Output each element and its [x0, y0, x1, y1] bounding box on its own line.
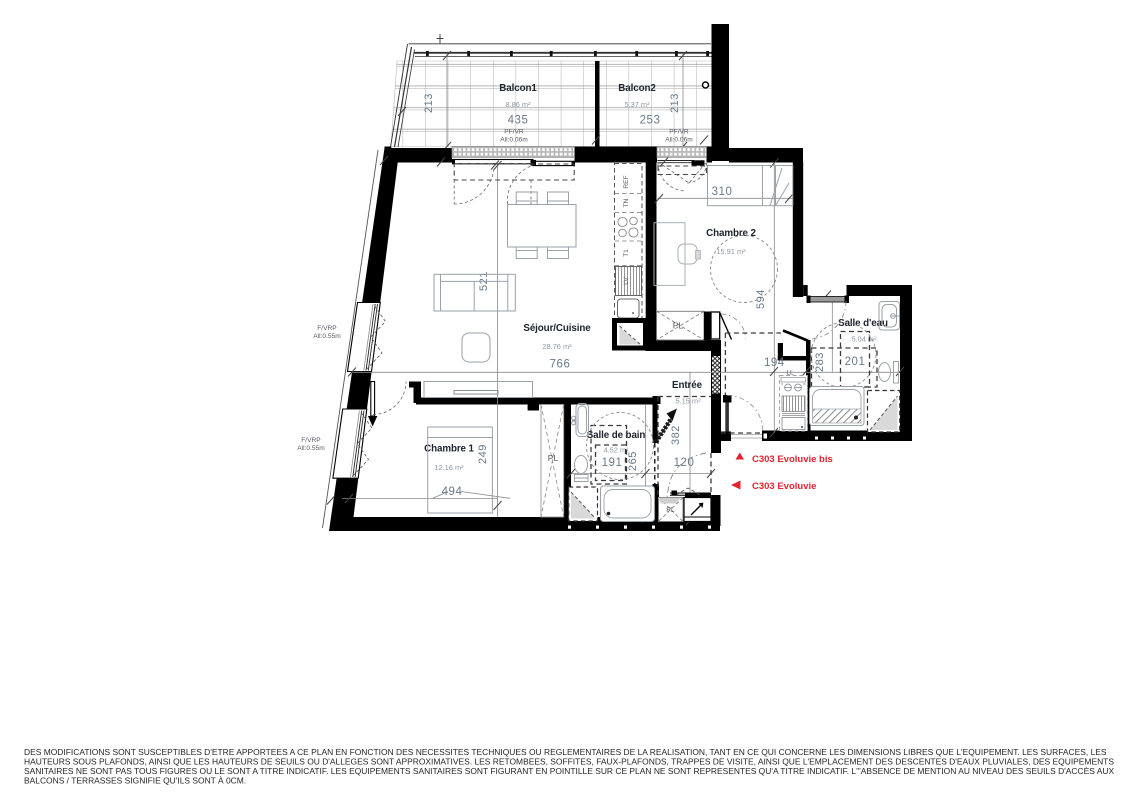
svg-text:194: 194 [764, 357, 785, 369]
svg-text:Balcon1: Balcon1 [499, 83, 537, 94]
svg-text:All:0.06m: All:0.06m [665, 137, 693, 144]
svg-text:Salle de bain: Salle de bain [587, 430, 646, 441]
svg-text:310: 310 [712, 186, 733, 198]
svg-text:TN: TN [623, 198, 630, 207]
svg-text:5.15 m²: 5.15 m² [675, 397, 701, 406]
svg-text:191: 191 [602, 457, 623, 469]
svg-text:120: 120 [674, 457, 695, 469]
svg-text:F/VRP: F/VRP [317, 325, 337, 332]
svg-text:PL: PL [548, 453, 559, 463]
svg-text:8.86 m²: 8.86 m² [505, 100, 531, 109]
svg-text:Chambre 1: Chambre 1 [424, 444, 474, 455]
svg-text:213: 213 [669, 93, 681, 113]
svg-text:594: 594 [755, 289, 767, 309]
svg-text:213: 213 [423, 93, 435, 113]
svg-text:Balcon2: Balcon2 [618, 83, 656, 94]
svg-text:PL: PL [666, 507, 675, 514]
svg-text:Séjour/Cuisine: Séjour/Cuisine [523, 323, 591, 334]
svg-text:15.91 m²: 15.91 m² [716, 247, 746, 256]
svg-text:F/VRP: F/VRP [301, 437, 321, 444]
svg-text:SANITAIRES NE SONT PAS TOUS FI: SANITAIRES NE SONT PAS TOUS FIGURES OU L… [24, 766, 1114, 776]
svg-text:28.76 m²: 28.76 m² [542, 342, 572, 351]
svg-text:5.04 m²: 5.04 m² [851, 335, 877, 344]
svg-text:PL: PL [673, 321, 684, 331]
svg-text:All:0.55m: All:0.55m [313, 333, 341, 340]
svg-text:C303 Evoluvie: C303 Evoluvie [752, 481, 816, 492]
svg-text:HAUTEURS SOUS PLAFONDS, AINSI: HAUTEURS SOUS PLAFONDS, AINSI QUE LES HA… [24, 756, 1114, 766]
svg-text:Entrée: Entrée [672, 380, 703, 391]
svg-text:494: 494 [442, 486, 463, 498]
svg-text:PF/VR: PF/VR [669, 129, 689, 136]
svg-text:PF/VR: PF/VR [504, 129, 524, 136]
svg-text:LV: LV [623, 277, 630, 285]
svg-text:201: 201 [845, 356, 866, 368]
svg-text:T1: T1 [623, 249, 630, 257]
svg-text:249: 249 [477, 444, 489, 464]
svg-text:REF: REF [623, 175, 630, 188]
svg-text:All:0.55m: All:0.55m [297, 445, 325, 452]
svg-text:Chambre 2: Chambre 2 [706, 228, 756, 239]
svg-text:766: 766 [550, 359, 571, 371]
svg-text:382: 382 [670, 425, 682, 445]
svg-text:Salle d'eau: Salle d'eau [838, 318, 888, 329]
svg-text:265: 265 [627, 451, 639, 471]
svg-text:DES MODIFICATIONS SONT SUSCEPT: DES MODIFICATIONS SONT SUSCEPTIBLES D'ET… [24, 747, 1107, 757]
svg-text:BALCONS / TERRASSES SIGNIFIE Q: BALCONS / TERRASSES SIGNIFIE QU'ILS SONT… [24, 775, 246, 785]
svg-text:283: 283 [814, 352, 826, 372]
svg-text:435: 435 [508, 115, 529, 127]
svg-text:5.37 m²: 5.37 m² [624, 100, 650, 109]
svg-text:All:0.06m: All:0.06m [500, 137, 528, 144]
svg-text:C303 Evoluvie bis: C303 Evoluvie bis [752, 454, 833, 465]
svg-text:253: 253 [640, 115, 661, 127]
svg-text:12.16 m²: 12.16 m² [434, 463, 464, 472]
